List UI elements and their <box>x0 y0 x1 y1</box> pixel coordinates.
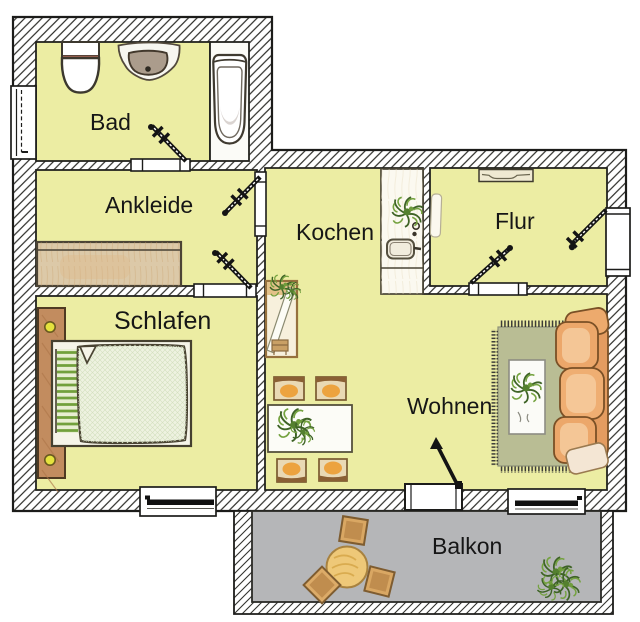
svg-text:Kochen: Kochen <box>296 219 374 245</box>
svg-text:Bad: Bad <box>90 109 131 135</box>
svg-text:Schlafen: Schlafen <box>114 307 211 335</box>
svg-text:Balkon: Balkon <box>432 533 502 559</box>
svg-text:Wohnen: Wohnen <box>407 393 492 419</box>
svg-text:Ankleide: Ankleide <box>105 192 193 218</box>
svg-text:Flur: Flur <box>495 208 535 234</box>
